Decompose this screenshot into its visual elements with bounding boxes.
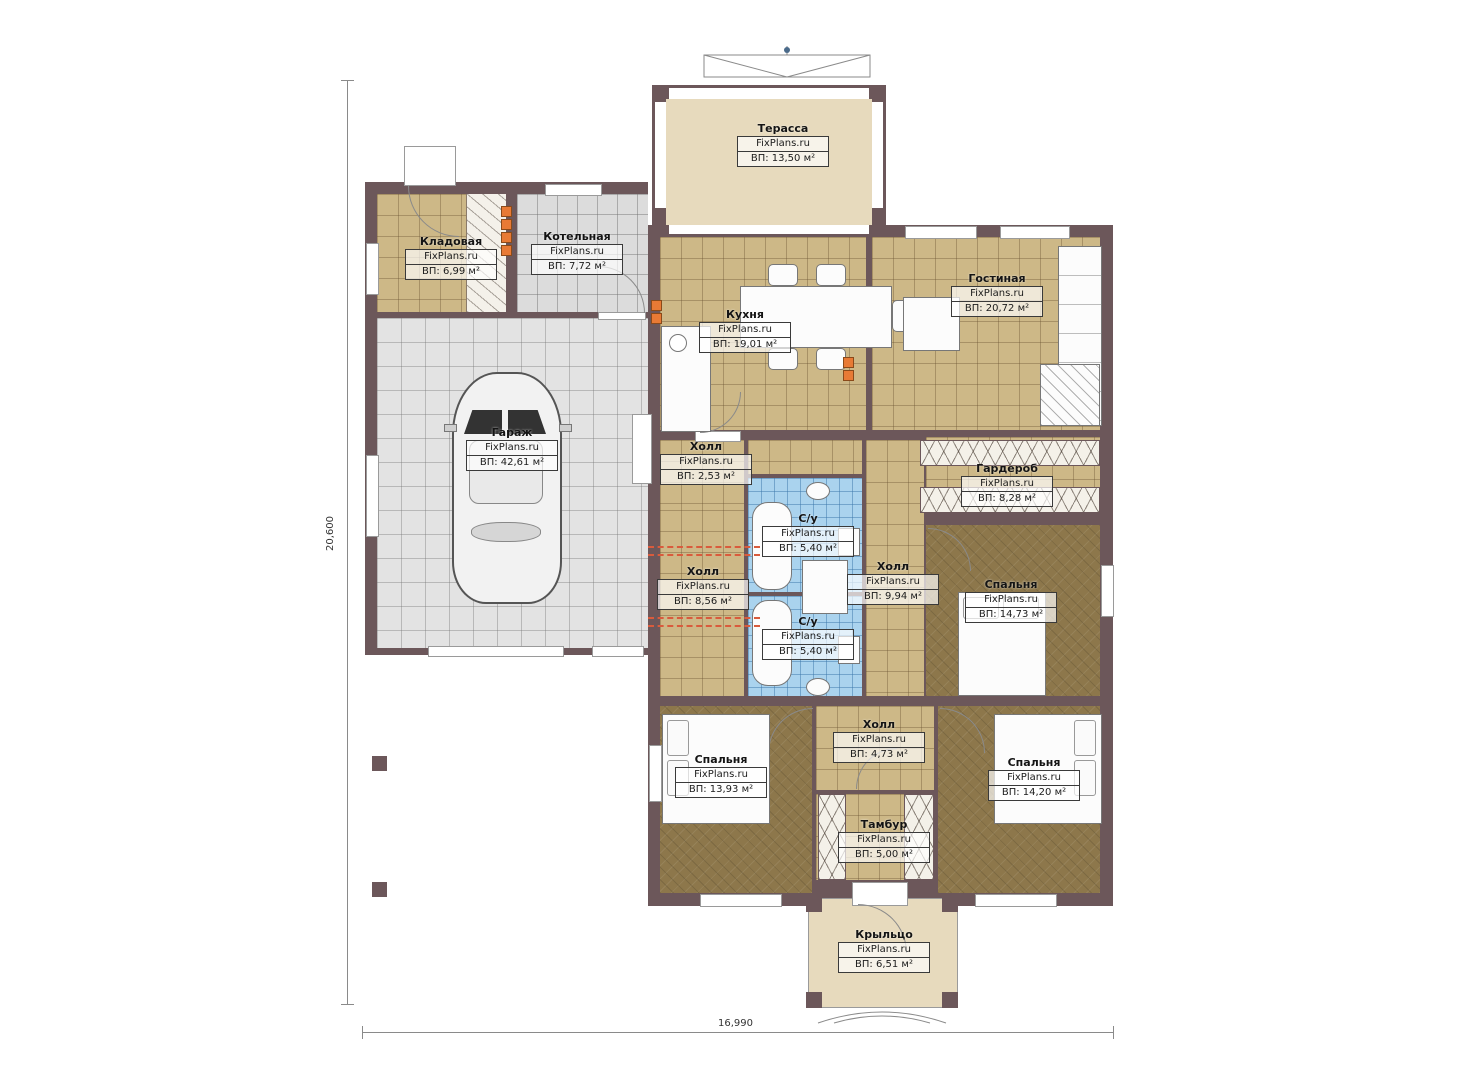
- car-rear-window: [471, 522, 541, 542]
- room-area: ВП: 20,72 м²: [952, 301, 1042, 316]
- brand-watermark: FixPlans.ru: [763, 527, 853, 541]
- room-label-bedroom-bottom-right: Спальня FixPlans.ruВП: 14,20 м²: [988, 756, 1080, 801]
- brand-watermark: FixPlans.ru: [738, 137, 828, 151]
- terrace-awning: [703, 46, 871, 86]
- room-area: ВП: 13,50 м²: [738, 151, 828, 166]
- room-label-kitchen: Кухня FixPlans.ruВП: 19,01 м²: [699, 308, 791, 353]
- utility-marker: [501, 206, 512, 217]
- room-label-bedroom-bottom-left: Спальня FixPlans.ruВП: 13,93 м²: [675, 753, 767, 798]
- brand-watermark: FixPlans.ru: [839, 943, 929, 957]
- chair: [816, 348, 846, 370]
- car: [452, 372, 562, 604]
- room-label-porch: Крыльцо FixPlans.ruВП: 6,51 м²: [838, 928, 930, 973]
- door-opening: [598, 312, 646, 320]
- door-opening: [852, 882, 908, 906]
- bath-cabinet: [802, 560, 848, 614]
- room-name: Котельная: [531, 230, 623, 243]
- room-label-bath-bottom: С/у FixPlans.ruВП: 5,40 м²: [762, 615, 854, 660]
- utility-marker: [843, 370, 854, 381]
- brand-watermark: FixPlans.ru: [700, 323, 790, 337]
- room-area: ВП: 5,40 м²: [763, 541, 853, 556]
- brand-watermark: FixPlans.ru: [763, 630, 853, 644]
- dimension-line-vertical: [347, 80, 348, 1005]
- room-name: Гараж: [466, 426, 558, 439]
- window: [700, 894, 782, 907]
- room-area: ВП: 19,01 м²: [700, 337, 790, 352]
- car-mirror: [559, 424, 572, 432]
- heating-dashed-line: [648, 617, 760, 619]
- room-name: Холл: [657, 565, 749, 578]
- porch-post: [806, 992, 822, 1008]
- garage-door-opening: [428, 646, 564, 657]
- room-area: ВП: 7,72 м²: [532, 259, 622, 274]
- brand-watermark: FixPlans.ru: [834, 733, 924, 747]
- brand-watermark: FixPlans.ru: [848, 575, 938, 589]
- porch-steps: [812, 1006, 952, 1024]
- dimension-line-horizontal: [362, 1032, 1114, 1033]
- room-area: ВП: 42,61 м²: [467, 455, 557, 470]
- room-label-living: Гостиная FixPlans.ruВП: 20,72 м²: [951, 272, 1043, 317]
- heating-dashed-line: [648, 554, 760, 556]
- room-area: ВП: 4,73 м²: [834, 747, 924, 762]
- chair: [768, 264, 798, 286]
- hall-strip: [748, 440, 862, 474]
- fence-post: [372, 756, 387, 771]
- room-name: Тамбур: [838, 818, 930, 831]
- corner-unit: [1040, 364, 1100, 426]
- room-label-hall-bottom: Холл FixPlans.ruВП: 4,73 м²: [833, 718, 925, 763]
- room-name: Кухня: [699, 308, 791, 321]
- brand-watermark: FixPlans.ru: [989, 771, 1079, 785]
- car-mirror: [444, 424, 457, 432]
- room-name: Холл: [833, 718, 925, 731]
- dimension-width-label: 16,990: [718, 1018, 753, 1029]
- room-label-garage: Гараж FixPlans.ruВП: 42,61 м²: [466, 426, 558, 471]
- utility-marker: [651, 313, 662, 324]
- door-opening: [592, 646, 644, 657]
- room-area: ВП: 14,20 м²: [989, 785, 1079, 800]
- brand-watermark: FixPlans.ru: [658, 580, 748, 594]
- floor-plan-canvas: 20,600 16,990: [0, 0, 1474, 1080]
- window: [545, 184, 602, 196]
- garage-side-door: [632, 414, 652, 484]
- kitchen-sink: [669, 334, 687, 352]
- room-label-storage: Кладовая FixPlans.ruВП: 6,99 м²: [405, 235, 497, 280]
- window: [366, 455, 379, 537]
- room-name: С/у: [762, 512, 854, 525]
- window: [905, 226, 977, 239]
- room-area: ВП: 6,99 м²: [406, 264, 496, 279]
- room-label-tambour: Тамбур FixPlans.ruВП: 5,00 м²: [838, 818, 930, 863]
- brand-watermark: FixPlans.ru: [952, 287, 1042, 301]
- room-area: ВП: 5,40 м²: [763, 644, 853, 659]
- window: [1101, 565, 1114, 617]
- room-label-hall-left: Холл FixPlans.ruВП: 8,56 м²: [657, 565, 749, 610]
- room-label-terrace: Терасса FixPlans.ruВП: 13,50 м²: [737, 122, 829, 167]
- dimension-tick: [341, 1004, 354, 1005]
- room-name: Терасса: [737, 122, 829, 135]
- room-name: Кладовая: [405, 235, 497, 248]
- brand-watermark: FixPlans.ru: [676, 768, 766, 782]
- utility-marker: [651, 300, 662, 311]
- porch-post: [942, 992, 958, 1008]
- window: [366, 243, 379, 295]
- utility-marker: [501, 245, 512, 256]
- toilet: [806, 482, 830, 500]
- room-area: ВП: 5,00 м²: [839, 847, 929, 862]
- room-name: Холл: [660, 440, 752, 453]
- room-label-hall-right: Холл FixPlans.ruВП: 9,94 м²: [847, 560, 939, 605]
- room-name: Гостиная: [951, 272, 1043, 285]
- brand-watermark: FixPlans.ru: [467, 441, 557, 455]
- room-area: ВП: 14,73 м²: [966, 607, 1056, 622]
- room-label-boiler: Котельная FixPlans.ruВП: 7,72 м²: [531, 230, 623, 275]
- window: [1000, 226, 1070, 239]
- entry-door: [404, 146, 456, 186]
- room-name: Гардероб: [961, 462, 1053, 475]
- toilet: [806, 678, 830, 696]
- dimension-tick: [362, 1026, 363, 1039]
- room-area: ВП: 9,94 м²: [848, 589, 938, 604]
- utility-marker: [501, 232, 512, 243]
- room-name: Крыльцо: [838, 928, 930, 941]
- brand-watermark: FixPlans.ru: [406, 250, 496, 264]
- dimension-tick: [1113, 1026, 1114, 1039]
- brand-watermark: FixPlans.ru: [962, 477, 1052, 491]
- brand-watermark: FixPlans.ru: [966, 593, 1056, 607]
- heating-dashed-line: [648, 625, 760, 627]
- porch-post: [806, 896, 822, 912]
- room-label-bath-top: С/у FixPlans.ruВП: 5,40 м²: [762, 512, 854, 557]
- fence-post: [372, 882, 387, 897]
- brand-watermark: FixPlans.ru: [532, 245, 622, 259]
- room-area: ВП: 8,28 м²: [962, 491, 1052, 506]
- room-label-hall-small: Холл FixPlans.ruВП: 2,53 м²: [660, 440, 752, 485]
- porch-post: [942, 896, 958, 912]
- window: [649, 745, 662, 802]
- brand-watermark: FixPlans.ru: [661, 455, 751, 469]
- room-area: ВП: 2,53 м²: [661, 469, 751, 484]
- room-name: Спальня: [988, 756, 1080, 769]
- brand-watermark: FixPlans.ru: [839, 833, 929, 847]
- room-name: Холл: [847, 560, 939, 573]
- room-name: Спальня: [965, 578, 1057, 591]
- room-area: ВП: 8,56 м²: [658, 594, 748, 609]
- room-label-bedroom-mid: Спальня FixPlans.ruВП: 14,73 м²: [965, 578, 1057, 623]
- bed-pillow: [667, 720, 689, 756]
- room-name: С/у: [762, 615, 854, 628]
- utility-marker: [843, 357, 854, 368]
- room-area: ВП: 13,93 м²: [676, 782, 766, 797]
- window: [975, 894, 1057, 907]
- dimension-tick: [341, 80, 354, 81]
- chair: [816, 264, 846, 286]
- utility-marker: [501, 219, 512, 230]
- room-name: Спальня: [675, 753, 767, 766]
- room-area: ВП: 6,51 м²: [839, 957, 929, 972]
- bed-pillow: [1074, 720, 1096, 756]
- dimension-height-label: 20,600: [325, 516, 336, 551]
- heating-dashed-line: [648, 546, 760, 548]
- room-label-wardrobe: Гардероб FixPlans.ruВП: 8,28 м²: [961, 462, 1053, 507]
